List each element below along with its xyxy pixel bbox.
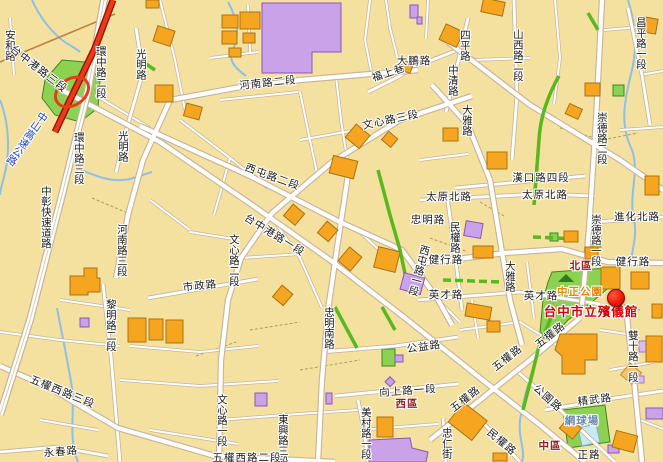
map-canvas[interactable]: 安和路台中港路三段環中路二段光明路光明路環中路三段中山高速公路中彰快速道路河南路… [0,0,663,462]
campus-area [262,3,341,73]
map-graphics [0,0,663,462]
poi-marker[interactable] [607,289,625,307]
minor-roads [0,0,663,444]
